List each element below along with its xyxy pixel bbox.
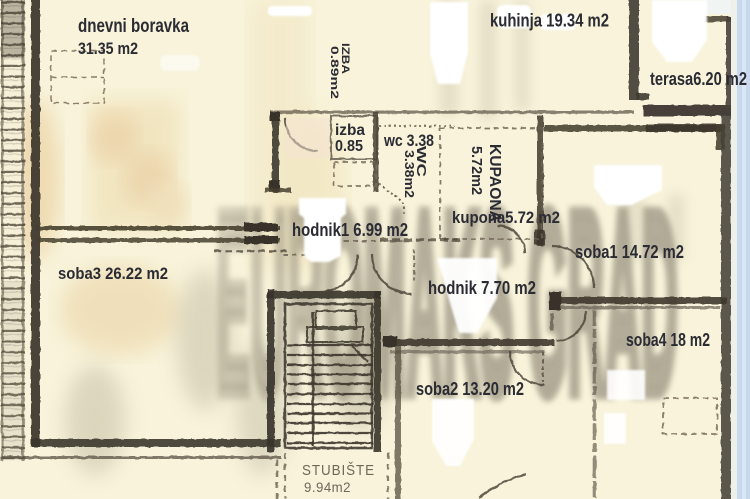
svg-text:terasa6.20 m2: terasa6.20 m2 (650, 69, 747, 89)
svg-text:0.85: 0.85 (335, 138, 363, 155)
svg-text:31.35 m2: 31.35 m2 (78, 39, 138, 58)
svg-text:5.72m2: 5.72m2 (468, 146, 485, 195)
svg-text:dnevni boravka: dnevni boravka (78, 16, 189, 37)
svg-text:soba1 14.72 m2: soba1 14.72 m2 (575, 242, 684, 262)
svg-text:hodnik 7.70 m2: hodnik 7.70 m2 (428, 278, 536, 298)
svg-text:kupona5.72 m2: kupona5.72 m2 (452, 208, 560, 227)
svg-text:soba2 13.20 m2: soba2 13.20 m2 (416, 379, 524, 399)
svg-text:kuhinja 19.34 m2: kuhinja 19.34 m2 (490, 11, 609, 31)
svg-text:hodnik1 6.99 m2: hodnik1 6.99 m2 (292, 220, 408, 240)
svg-text:9.94m2: 9.94m2 (304, 479, 351, 495)
svg-text:izba: izba (335, 122, 365, 139)
svg-text:STUBIŠTE: STUBIŠTE (302, 462, 375, 479)
svg-text:soba4 18 m2: soba4 18 m2 (626, 330, 710, 350)
svg-text:0.89m2: 0.89m2 (328, 46, 340, 99)
svg-text:soba3 26.22 m2: soba3 26.22 m2 (58, 264, 168, 283)
svg-text:3.38m2: 3.38m2 (402, 150, 417, 198)
